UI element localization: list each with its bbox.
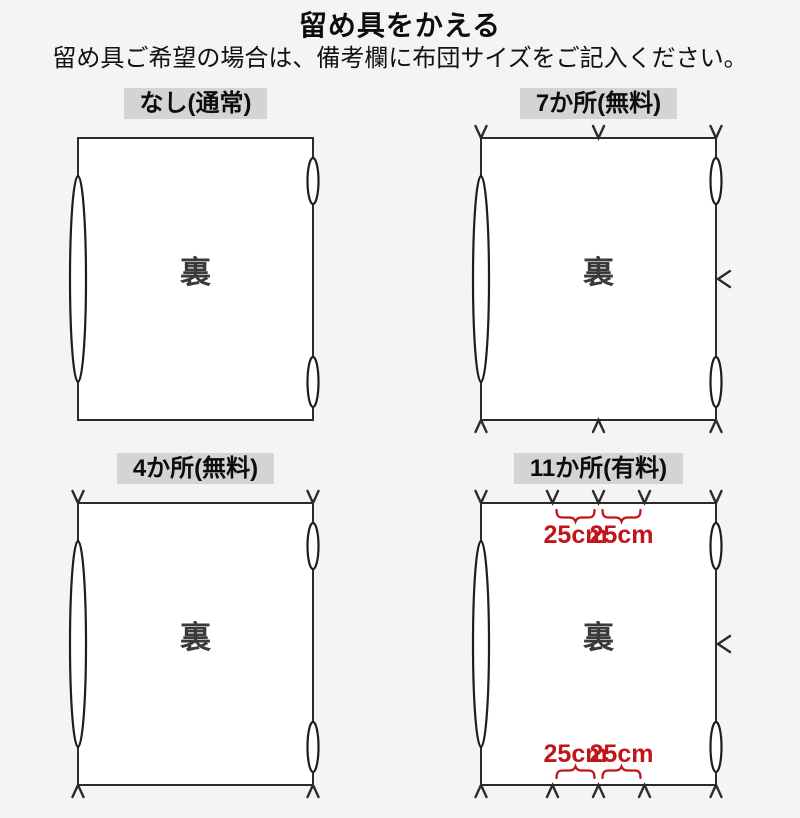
futon-back-diagram-none: 裏 (53, 118, 338, 448)
fastener-mark-top-5 (711, 491, 722, 503)
side-opening-ellipse (70, 541, 86, 747)
loop-ellipse-top-right (711, 523, 722, 569)
fastener-mark-right-middle (718, 271, 730, 287)
fastener-mark-bottom-right (711, 420, 722, 432)
panel-none-label: なし(通常) (124, 88, 268, 119)
loop-ellipse-bottom-right (711, 357, 722, 407)
fastener-mark-top-1 (476, 491, 487, 503)
side-opening-ellipse (473, 176, 489, 382)
fastener-mark-bottom-left (73, 785, 84, 797)
back-side-label: 裏 (583, 620, 615, 655)
panel-seven-label-wrap: 7か所(無料) (456, 88, 741, 119)
fastener-mark-top-center (593, 126, 604, 138)
panel-four: 4か所(無料) 裏 (53, 453, 338, 818)
fastener-mark-top-left (476, 126, 487, 138)
page-subtitle: 留め具ご希望の場合は、備考欄に布団サイズをご記入ください。 (0, 38, 800, 73)
panel-four-label-wrap: 4か所(無料) (53, 453, 338, 484)
loop-ellipse-bottom-right (308, 722, 319, 772)
loop-ellipse-top-right (308, 523, 319, 569)
fastener-mark-bottom-left (476, 420, 487, 432)
side-opening-ellipse (473, 541, 489, 747)
fastener-mark-top-right (711, 126, 722, 138)
loop-ellipse-bottom-right (308, 357, 319, 407)
fastener-mark-bottom-2 (547, 785, 558, 797)
panel-none: なし(通常) 裏 (53, 88, 338, 453)
panel-eleven-label: 11か所(有料) (514, 453, 683, 484)
fastener-mark-bottom-3 (593, 785, 604, 797)
back-side-label: 裏 (180, 620, 212, 655)
panel-eleven: 11か所(有料) (456, 453, 741, 818)
fastener-mark-right-middle (718, 636, 730, 652)
fastener-mark-bottom-center (593, 420, 604, 432)
dimension-label-top-2: 25cm (590, 521, 654, 549)
back-side-label: 裏 (583, 255, 615, 290)
fastener-mark-bottom-right (308, 785, 319, 797)
panel-eleven-label-wrap: 11か所(有料) (456, 453, 741, 484)
loop-ellipse-bottom-right (711, 722, 722, 772)
side-opening-ellipse (70, 176, 86, 382)
panel-seven: 7か所(無料) 裏 (456, 88, 741, 453)
futon-back-diagram-eleven: 25cm 25cm 25cm 25cm 裏 (456, 483, 741, 813)
fastener-mark-top-3 (593, 491, 604, 503)
loop-ellipse-top-right (308, 158, 319, 204)
back-side-label: 裏 (180, 255, 212, 290)
loop-ellipse-top-right (711, 158, 722, 204)
dimension-label-bottom-2: 25cm (590, 740, 654, 768)
fastener-mark-bottom-5 (711, 785, 722, 797)
fastener-mark-top-4 (639, 491, 650, 503)
fastener-mark-bottom-4 (639, 785, 650, 797)
fastener-mark-top-left (73, 491, 84, 503)
futon-back-diagram-seven: 裏 (456, 118, 741, 448)
panel-four-label: 4か所(無料) (117, 453, 274, 484)
futon-back-diagram-four: 裏 (53, 483, 338, 813)
fastener-mark-top-right (308, 491, 319, 503)
fastener-mark-bottom-1 (476, 785, 487, 797)
panel-seven-label: 7か所(無料) (520, 88, 677, 119)
panel-none-label-wrap: なし(通常) (53, 88, 338, 119)
fastener-mark-top-2 (547, 491, 558, 503)
